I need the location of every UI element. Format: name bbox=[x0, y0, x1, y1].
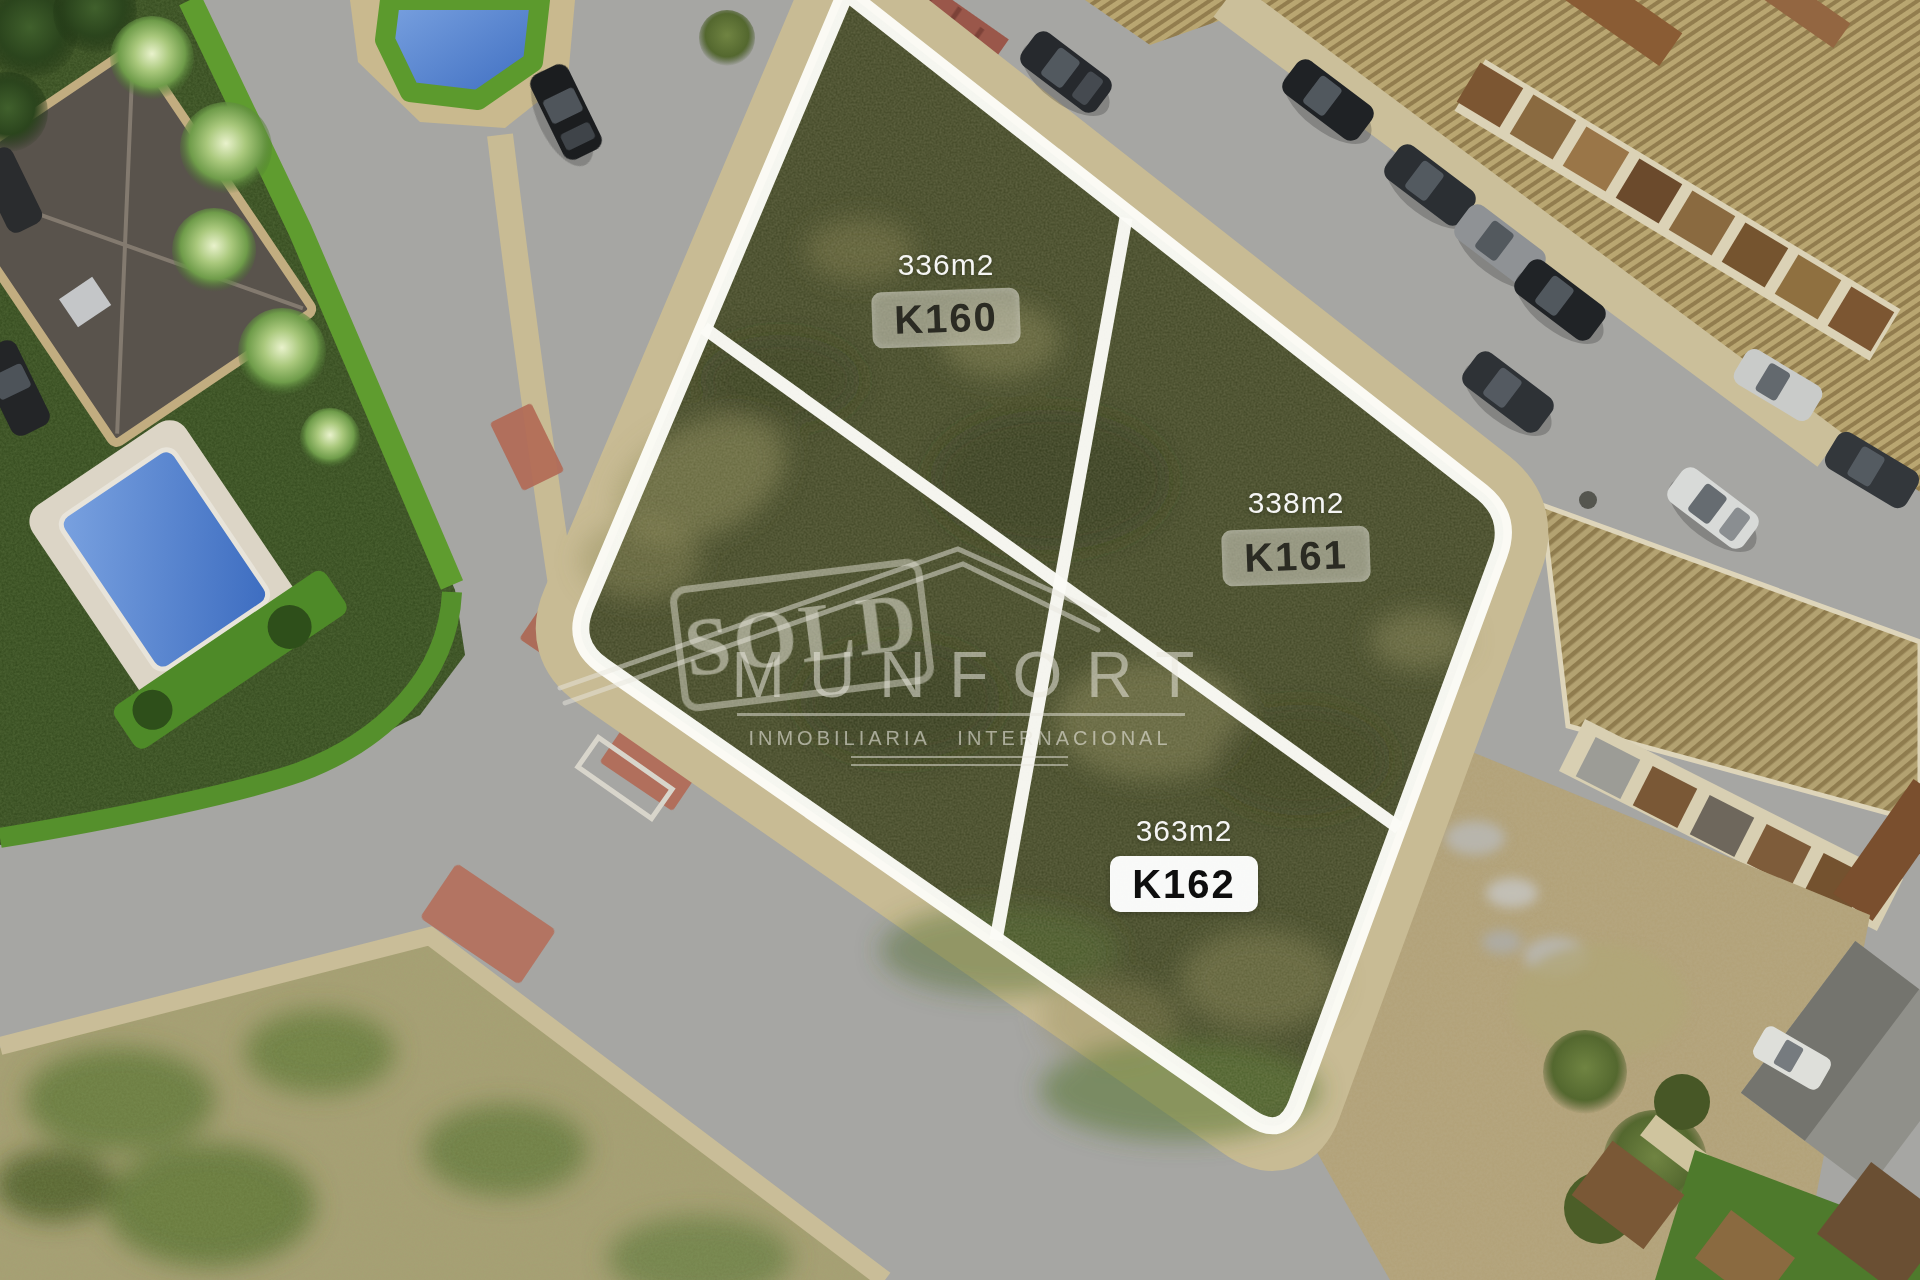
palm-tree bbox=[172, 208, 256, 292]
palm-tree bbox=[238, 308, 326, 396]
palm-tree bbox=[180, 102, 272, 194]
plot-code-badge: K160 bbox=[871, 287, 1021, 348]
plot-area-text: 336m2 bbox=[862, 248, 1030, 282]
brand-tagline: INMOBILIARIA INTERNACIONAL bbox=[748, 727, 1171, 750]
plot-code-badge: K161 bbox=[1221, 525, 1371, 586]
manhole bbox=[1579, 491, 1597, 509]
plot-area-text: 338m2 bbox=[1212, 486, 1380, 520]
watermark-rule bbox=[851, 756, 1068, 758]
plot-label-k161: 338m2 K161 bbox=[1212, 486, 1380, 584]
plot-label-k160: 336m2 K160 bbox=[862, 248, 1030, 346]
palm-tree bbox=[110, 16, 194, 100]
brand-watermark: MUNFORT bbox=[708, 638, 1219, 712]
bush bbox=[699, 10, 755, 66]
bush bbox=[1543, 1030, 1627, 1114]
watermark-rule bbox=[737, 713, 1185, 716]
plot-label-k162: 363m2 K162 bbox=[1100, 814, 1268, 912]
plot-area-text: 363m2 bbox=[1100, 814, 1268, 848]
pool-water bbox=[385, 0, 540, 100]
plot-code-badge: K162 bbox=[1110, 856, 1258, 912]
watermark-rule bbox=[851, 764, 1068, 766]
palm-tree bbox=[300, 408, 360, 468]
aerial-photo-canvas: 336m2 K160 338m2 K161 363m2 K162 SOLD MU… bbox=[0, 0, 1920, 1280]
